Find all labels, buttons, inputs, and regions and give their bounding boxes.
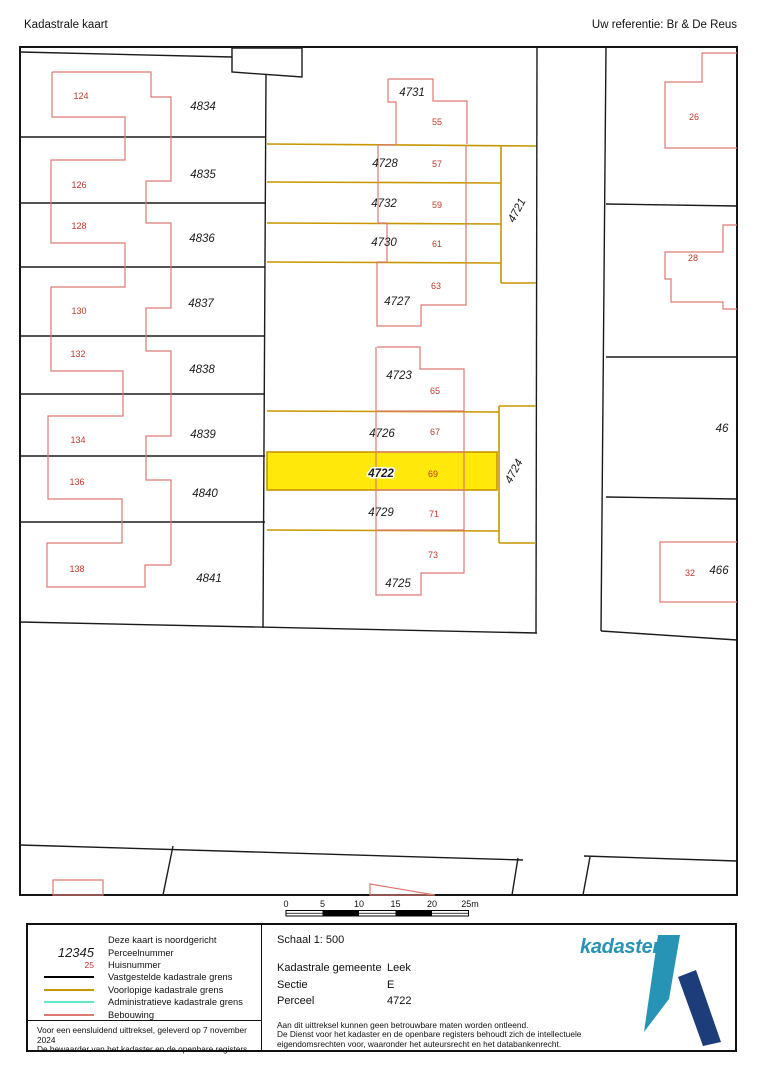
parcel-label-4732: 4732	[371, 198, 397, 210]
parcel-label-4837: 4837	[188, 298, 214, 310]
scale-tick-25m: 25m	[461, 899, 479, 909]
yellow-line-swatch	[44, 989, 94, 991]
kadaster-logo: kadaster	[562, 925, 739, 1051]
house-number-73: 73	[428, 550, 438, 560]
legend-parcel-label: Perceelnummer	[108, 948, 174, 958]
parcel-label-4726: 4726	[369, 428, 395, 440]
logo-k-dark-stroke	[678, 970, 721, 1046]
cyan-line-swatch	[44, 1001, 94, 1003]
gemeente-label: Kadastrale gemeente	[277, 962, 387, 979]
cadastral-extract-page: Kadastrale kaart Uw referentie: Br & De …	[0, 0, 763, 1080]
red-line-swatch	[44, 1014, 94, 1016]
house-number-136: 136	[69, 477, 84, 487]
parcel-label-466-clipped: 466	[709, 565, 729, 577]
legend-parcel-sample: 12345	[58, 945, 94, 960]
panel-divider	[261, 925, 262, 1050]
parcel-label-4731: 4731	[399, 87, 425, 99]
legend-row-housenumber: 25 Huisnummer	[28, 959, 261, 971]
perceel-value: 4722	[387, 995, 411, 1012]
black-line-swatch	[44, 976, 94, 978]
parcel-label-46-clipped: 46	[716, 423, 729, 435]
disclaimer-line-3: eigendomsrechten voor, waaronder het aut…	[277, 1040, 607, 1049]
parcel-label-4723: 4723	[386, 370, 412, 382]
scale-tick-10: 10	[354, 899, 364, 909]
parcel-label-4840: 4840	[192, 488, 218, 500]
attestation: Voor een eensluidend uittreksel, gelever…	[28, 1020, 261, 1052]
house-number-57: 57	[432, 159, 442, 169]
parcel-label-4727: 4727	[384, 296, 410, 308]
house-number-67: 67	[430, 427, 440, 437]
house-number-28: 28	[688, 253, 698, 263]
parcel-label-4722: 4722	[367, 468, 394, 480]
house-number-59: 59	[432, 200, 442, 210]
scale-text: Schaal 1: 500	[277, 934, 344, 946]
parcel-label-4725: 4725	[385, 578, 411, 590]
scale-tick-0: 0	[283, 899, 288, 909]
info-row-sectie: Sectie E	[277, 979, 411, 996]
scale-tick-20: 20	[427, 899, 437, 909]
parcel-label-4839: 4839	[190, 429, 216, 441]
parcel-label-4836: 4836	[189, 233, 215, 245]
info-row-gemeente: Kadastrale gemeente Leek	[277, 962, 411, 979]
house-number-126: 126	[71, 180, 86, 190]
house-number-55: 55	[432, 117, 442, 127]
house-number-130: 130	[71, 306, 86, 316]
parcel-label-4834: 4834	[190, 101, 216, 113]
info-row-perceel: Perceel 4722	[277, 995, 411, 1012]
legend-row-provisional-boundary: Voorlopige kadastrale grens	[28, 984, 261, 996]
legend-row-administrative-boundary: Administratieve kadastrale grens	[28, 996, 261, 1008]
legend-fixed-boundary-label: Vastgestelde kadastrale grens	[108, 972, 232, 982]
legend-provisional-boundary-label: Voorlopige kadastrale grens	[108, 985, 223, 995]
legend-row-fixed-boundary: Vastgestelde kadastrale grens	[28, 971, 261, 983]
legend-house-label: Huisnummer	[108, 960, 161, 970]
house-number-69: 69	[428, 469, 438, 479]
parcel-label-4841: 4841	[196, 573, 222, 585]
parcel-label-4730: 4730	[371, 237, 397, 249]
legend-north-note: Deze kaart is noordgericht	[108, 935, 217, 945]
house-number-65: 65	[430, 386, 440, 396]
house-number-132: 132	[70, 349, 85, 359]
house-number-32: 32	[685, 568, 695, 578]
scale-bar: 0 5 10 15 20 25m	[283, 899, 478, 916]
cadastral-map: 4834 4835 4836 4837 4838 4839 4840 4841 …	[0, 0, 763, 920]
house-number-138: 138	[69, 564, 84, 574]
attestation-line-1: Voor een eensluidend uittreksel, gelever…	[37, 1026, 261, 1045]
gemeente-value: Leek	[387, 962, 411, 979]
house-number-61: 61	[432, 239, 442, 249]
house-number-128: 128	[71, 221, 86, 231]
parcel-label-4721: 4721	[506, 196, 529, 224]
legend-administrative-boundary-label: Administratieve kadastrale grens	[108, 997, 243, 1007]
attestation-line-2: De bewaarder van het kadaster en de open…	[37, 1045, 261, 1055]
parcel-label-4724: 4724	[503, 457, 526, 485]
scale-tick-5: 5	[320, 899, 325, 909]
kadaster-wordmark: kadaster	[580, 936, 661, 958]
bottom-panel: Deze kaart is noordgericht 12345 Perceel…	[26, 923, 737, 1052]
sectie-value: E	[387, 979, 394, 996]
parcel-label-4729: 4729	[368, 507, 394, 519]
legend-house-sample: 25	[85, 960, 94, 970]
house-number-26: 26	[689, 112, 699, 122]
scale-tick-15: 15	[390, 899, 400, 909]
house-number-63: 63	[431, 281, 441, 291]
house-number-134: 134	[70, 435, 85, 445]
parcel-label-4835: 4835	[190, 169, 216, 181]
legend-row-building: Bebouwing	[28, 1008, 261, 1020]
parcel-labels: 4834 4835 4836 4837 4838 4839 4840 4841 …	[188, 87, 729, 590]
disclaimer: Aan dit uittreksel kunnen geen betrouwba…	[277, 1021, 607, 1049]
sectie-label: Sectie	[277, 979, 387, 996]
legend: Deze kaart is noordgericht 12345 Perceel…	[28, 925, 261, 1029]
house-number-124: 124	[73, 91, 88, 101]
house-number-71: 71	[429, 509, 439, 519]
legend-building-label: Bebouwing	[108, 1010, 154, 1020]
parcel-label-4838: 4838	[189, 364, 215, 376]
perceel-label: Perceel	[277, 995, 387, 1012]
legend-row-parcelnumber: 12345 Perceelnummer	[28, 946, 261, 958]
parcel-label-4728: 4728	[372, 158, 398, 170]
